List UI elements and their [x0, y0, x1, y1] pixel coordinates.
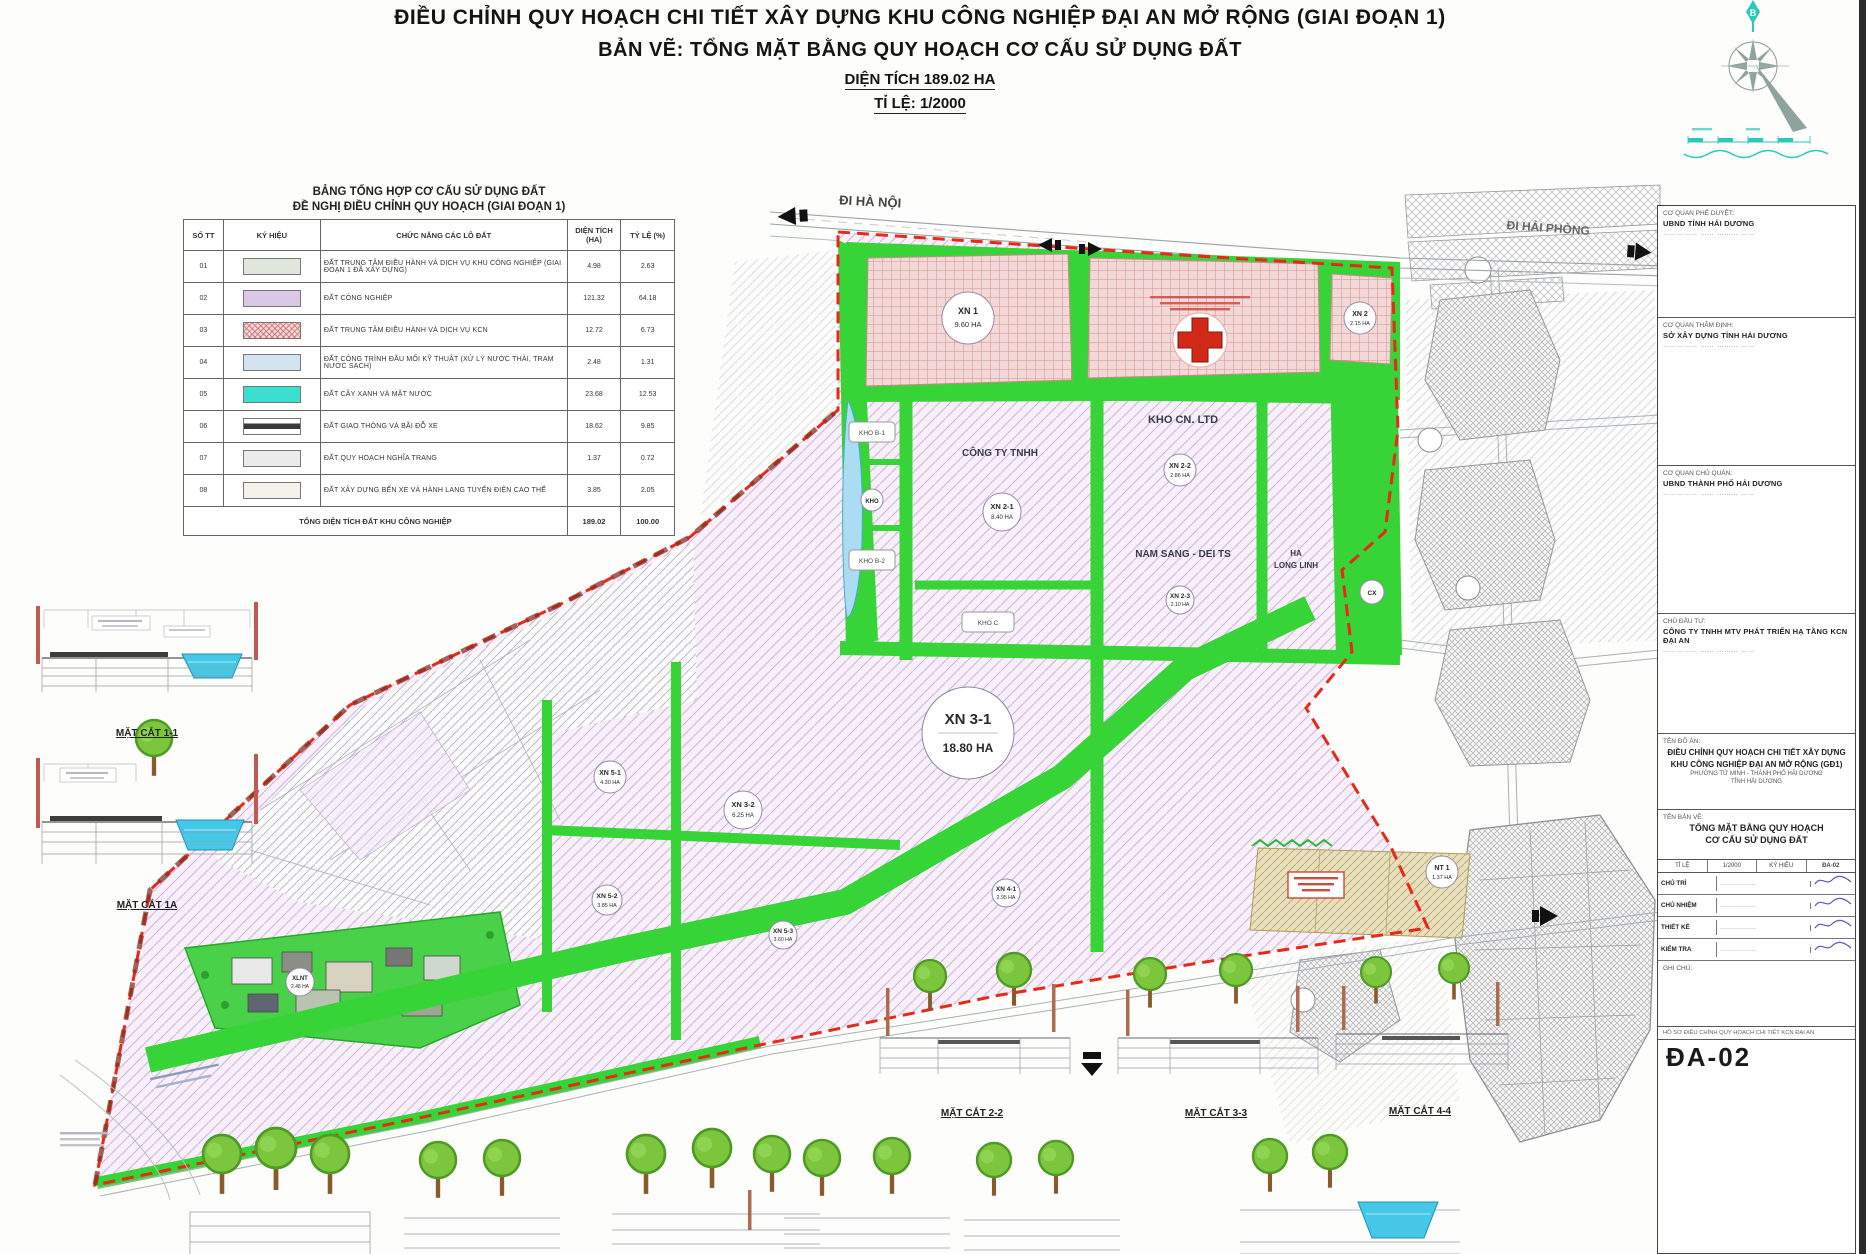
section-label-1-1: MẶT CẮT 1-1 — [116, 726, 179, 739]
col-stt: SỐ TT — [184, 220, 224, 251]
svg-text:2.15 HA: 2.15 HA — [1350, 321, 1370, 327]
zone-label: XN 2-22.86 HA — [1164, 454, 1196, 486]
zone-label: CX — [1360, 580, 1384, 604]
section-label-1a: MẶT CẮT 1A — [117, 898, 178, 911]
svg-text:6.25 HA: 6.25 HA — [732, 813, 754, 819]
zone-label: XN 5-14.30 HA — [594, 761, 626, 793]
arrow-west-icon — [777, 206, 808, 226]
svg-text:XN 5-2: XN 5-2 — [596, 893, 617, 900]
approver-box: CƠ QUAN PHÊ DUYỆT: UBND TỈNH HẢI DƯƠNG …… — [1658, 206, 1855, 318]
zone-label: KHO — [861, 489, 883, 511]
cross-section-1-1 — [36, 602, 258, 692]
legend-row: 07ĐẤT QUY HOẠCH NGHĨA TRANG1.370.72 — [184, 443, 675, 475]
lot-title-kho-cn: KHO CN. LTD — [1148, 414, 1218, 426]
legend-row: 04ĐẤT CÔNG TRÌNH ĐẦU MỐI KỸ THUẬT (XỬ LÝ… — [184, 347, 675, 379]
legend-row: 02ĐẤT CÔNG NGHIỆP121.3264.18 — [184, 283, 675, 315]
svg-text:CX: CX — [1367, 590, 1377, 597]
col-kyhieu: KÝ HIỆU — [223, 220, 320, 251]
meta-row: TỈ LỆ1/2000 KÝ HIỆUĐA-02 — [1658, 860, 1855, 873]
legend-subtitle: ĐỀ NGHỊ ĐIỀU CHỈNH QUY HOẠCH (GIAI ĐOẠN … — [183, 201, 675, 213]
svg-text:4.30 HA: 4.30 HA — [600, 780, 620, 786]
zone-label: XN 5-23.85 HA — [592, 885, 622, 915]
area-total: DIỆN TÍCH 189.02 HA — [845, 71, 996, 90]
signature-row: CHỦ TRÌ……………… — [1658, 873, 1855, 895]
zone-label: XN 22.15 HA — [1344, 302, 1376, 334]
svg-text:3.60 HA: 3.60 HA — [774, 937, 793, 943]
svg-text:KHO B-2: KHO B-2 — [859, 558, 885, 565]
svg-text:XLNT: XLNT — [292, 976, 308, 982]
svg-text:KHO: KHO — [865, 499, 879, 505]
zone-label: XN 5-33.60 HA — [769, 921, 797, 949]
section-label-2-2: MẶT CẮT 2-2 — [941, 1106, 1004, 1119]
lot-title-cty: CÔNG TY TNHH — [962, 446, 1038, 459]
cross-section-1a — [36, 720, 258, 864]
svg-text:9.60 HA: 9.60 HA — [954, 320, 981, 329]
legend-table: SỐ TT KÝ HIỆU CHỨC NĂNG CÁC LÔ ĐẤT DIỆN … — [183, 219, 675, 536]
legend-total-row: TỔNG DIỆN TÍCH ĐẤT KHU CÔNG NGHIỆP 189.0… — [184, 507, 675, 536]
drawing-name-box: TÊN BẢN VẼ: TỔNG MẶT BẰNG QUY HOẠCH CƠ C… — [1658, 810, 1855, 860]
drawing-header: ĐIỀU CHỈNH QUY HOẠCH CHI TIẾT XÂY DỰNG K… — [250, 6, 1590, 112]
svg-text:18.80 HA: 18.80 HA — [943, 741, 994, 755]
north-label: B — [1750, 8, 1757, 18]
svg-text:2.95 HA: 2.95 HA — [997, 895, 1016, 901]
drawing-sheet: KHO CN. LTD NAM SANG - DEI TS CÔNG TY TN… — [0, 0, 1866, 1254]
legend-row: 01ĐẤT TRUNG TÂM ĐIỀU HÀNH VÀ DỊCH VỤ KHU… — [184, 251, 675, 283]
svg-text:XN 2: XN 2 — [1352, 311, 1368, 318]
review-box: CƠ QUAN THẨM ĐỊNH: SỞ XÂY DỰNG TỈNH HẢI … — [1658, 318, 1855, 466]
project-name-box: TÊN ĐỒ ÁN: ĐIỀU CHỈNH QUY HOẠCH CHI TIẾT… — [1658, 734, 1855, 810]
reserved-lot-tan — [1250, 840, 1470, 938]
svg-text:8.40 HA: 8.40 HA — [991, 515, 1013, 521]
section-label-4-4: MẶT CẮT 4-4 — [1389, 1104, 1452, 1117]
svg-text:3.85 HA: 3.85 HA — [597, 903, 617, 909]
legend-row: 03ĐẤT TRUNG TÂM ĐIỀU HÀNH VÀ DỊCH VỤ KCN… — [184, 315, 675, 347]
svg-text:KHO B-1: KHO B-1 — [859, 430, 885, 437]
zone-label: XN 2-32.10 HA — [1166, 586, 1194, 614]
svg-text:XN 4-1: XN 4-1 — [996, 886, 1017, 893]
svg-text:NT 1: NT 1 — [1434, 865, 1449, 872]
svg-text:2.10 HA: 2.10 HA — [1171, 602, 1190, 608]
notes-box: GHI CHÚ: — [1658, 961, 1855, 1027]
signature-row: CHỦ NHIỆM……………… — [1658, 895, 1855, 917]
drawing-subtitle: BẢN VẼ: TỔNG MẶT BẰNG QUY HOẠCH CƠ CẤU S… — [250, 39, 1590, 62]
arrow-south-icon — [1081, 1052, 1103, 1076]
svg-text:KHO C: KHO C — [978, 620, 999, 627]
col-tyle: TỶ LỆ (%) — [621, 220, 675, 251]
svg-text:2.86 HA: 2.86 HA — [1170, 473, 1190, 479]
svg-text:XN 2-3: XN 2-3 — [1170, 593, 1191, 600]
svg-text:XN 2-2: XN 2-2 — [1169, 463, 1191, 470]
legend-row: 06ĐẤT GIAO THÔNG VÀ BÃI ĐỖ XE18.629.85 — [184, 411, 675, 443]
sheet-number: ĐA-02 — [1658, 1040, 1855, 1075]
svg-text:1.37 HA: 1.37 HA — [1432, 875, 1452, 881]
svg-text:XN 5-1: XN 5-1 — [599, 770, 621, 777]
svg-text:XN 2-1: XN 2-1 — [990, 502, 1013, 511]
compass-rose: B — [1721, 0, 1807, 132]
sheet-frame-edge — [1859, 0, 1866, 1254]
landuse-legend: BẢNG TỔNG HỢP CƠ CẤU SỬ DỤNG ĐẤT ĐỀ NGHỊ… — [183, 186, 675, 536]
svg-text:2.48 HA: 2.48 HA — [291, 984, 310, 990]
svg-text:XN 5-3: XN 5-3 — [773, 928, 794, 935]
legend-row: 05ĐẤT CÂY XANH VÀ MẶT NƯỚC23.6812.53 — [184, 379, 675, 411]
col-chucnang: CHỨC NĂNG CÁC LÔ ĐẤT — [320, 220, 567, 251]
zone-label: NT 11.37 HA — [1426, 856, 1458, 888]
signature-table: CHỦ TRÌ………………CHỦ NHIỆM………………THIẾT KẾ…………… — [1658, 873, 1855, 961]
svg-text:XN 1: XN 1 — [958, 306, 978, 316]
scale-note: TỈ LỆ: 1/2000 — [874, 95, 966, 114]
zone-label-main: XN 3-118.80 HA — [922, 687, 1014, 779]
signature-row: KIỂM TRA……………… — [1658, 939, 1855, 961]
svg-text:XN 3-2: XN 3-2 — [731, 800, 754, 809]
zone-label: XN 4-12.95 HA — [992, 879, 1020, 907]
legend-title: BẢNG TỔNG HỢP CƠ CẤU SỬ DỤNG ĐẤT — [183, 186, 675, 198]
dossier-note: HỒ SƠ ĐIỀU CHỈNH QUY HOẠCH CHI TIẾT KCN … — [1658, 1027, 1855, 1040]
label-di-ha-noi: ĐI HÀ NỘI — [839, 192, 902, 210]
legend-row: 08ĐẤT XÂY DỰNG BẾN XE VÀ HÀNH LANG TUYẾN… — [184, 475, 675, 507]
zone-label: XLNT2.48 HA — [286, 968, 314, 996]
drawing-title: ĐIỀU CHỈNH QUY HOẠCH CHI TIẾT XÂY DỰNG K… — [250, 6, 1590, 30]
signature-row: THIẾT KẾ……………… — [1658, 917, 1855, 939]
section-label-3-3: MẶT CẮT 3-3 — [1185, 1106, 1248, 1119]
scale-bar — [1684, 128, 1828, 158]
lot-title-ha2: LONG LINH — [1274, 561, 1318, 570]
authority-box: CƠ QUAN CHỦ QUẢN: UBND THÀNH PHỐ HẢI DƯƠ… — [1658, 466, 1855, 614]
title-block: CƠ QUAN PHÊ DUYỆT: UBND TỈNH HẢI DƯƠNG …… — [1657, 205, 1856, 1254]
lot-title-nam-sang: NAM SANG - DEI TS — [1135, 549, 1231, 560]
investor-box: CHỦ ĐẦU TƯ: CÔNG TY TNHH MTV PHÁT TRIỂN … — [1658, 614, 1855, 734]
zone-label: XN 2-18.40 HA — [983, 493, 1021, 531]
zone-label: XN 19.60 HA — [942, 292, 994, 344]
lot-title-ha1: HA — [1290, 549, 1302, 558]
col-dientich: DIỆN TÍCH (HA) — [567, 220, 621, 251]
svg-text:XN 3-1: XN 3-1 — [945, 711, 992, 728]
zone-label: XN 3-26.25 HA — [724, 791, 762, 829]
